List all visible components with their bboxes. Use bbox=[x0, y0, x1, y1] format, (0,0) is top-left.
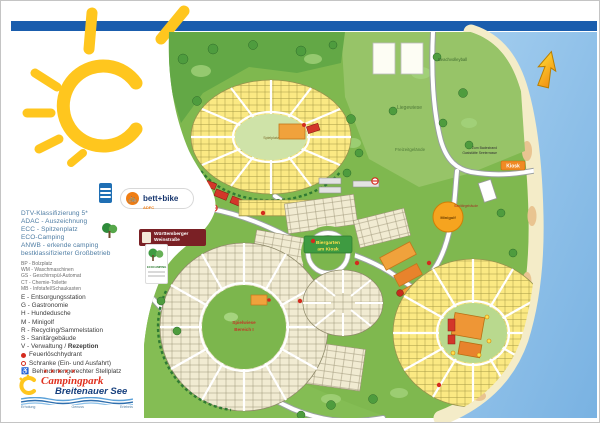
brand-waves-icon bbox=[21, 397, 133, 405]
bett-bike-logo: 🚲 bett+bike ADFC bbox=[120, 188, 194, 209]
label-minigolf: Minigolf bbox=[440, 215, 456, 220]
label-spielplatz: Spielplatz bbox=[263, 136, 279, 140]
weinstrasse-emblem bbox=[142, 232, 151, 243]
label-beachvolleyball: Beachvolleyball bbox=[438, 57, 467, 62]
label-seeterrasse: Gaststätte Seeterrasse bbox=[462, 151, 497, 155]
certification-line: DTV-Klassifizierung 5* bbox=[21, 210, 141, 218]
label-spielwiese-2: Bereich I bbox=[234, 327, 253, 332]
legend-line: M - Minigolf bbox=[21, 319, 146, 327]
bike-icon: 🚲 bbox=[126, 192, 139, 205]
certification-line: ANWB - erkende camping bbox=[21, 242, 141, 250]
label-kiosk: Kiosk bbox=[506, 164, 520, 170]
legend-hydrant-label: Feuerlöschhydrant bbox=[29, 351, 82, 359]
legend-abbreviations: BP - Bolzplatz WM - Waschmaschinen GS - … bbox=[21, 261, 141, 292]
badge-trees-icon bbox=[147, 247, 166, 261]
classification-logo bbox=[99, 183, 112, 203]
legend-hydrant-row: Feuerlöschhydrant bbox=[21, 351, 146, 359]
legend-line: R - Recycling/Sammelstation bbox=[21, 327, 146, 335]
barrier-icon bbox=[21, 361, 26, 366]
pitch-cluster-small bbox=[303, 270, 383, 336]
badge-title: ECOCAMPING bbox=[147, 266, 166, 269]
tagline-word: Erlebnis bbox=[120, 405, 133, 409]
site-plan-page: Beachvolleyball Liegewiese Freizeitgelän… bbox=[0, 0, 600, 423]
sun-illustration bbox=[27, 11, 184, 163]
brand-name-text: Breitenauer See bbox=[55, 386, 127, 397]
label-liegewiese: Liegewiese bbox=[397, 105, 422, 111]
certification-line: ECC - Spitzenplatz bbox=[21, 226, 141, 234]
weinstrasse-line2: Weinstraße bbox=[154, 238, 180, 243]
label-biergarten-2: am Kiosk bbox=[317, 247, 339, 253]
tagline-word: Genuss bbox=[72, 405, 84, 409]
label-biergarten-1: Biergarten bbox=[316, 240, 340, 246]
legend-line-verwaltung: V - Verwaltung / Rezeption bbox=[21, 343, 146, 351]
legend-line: S - Sanitärgebäude bbox=[21, 335, 146, 343]
legend-main: E - Entsorgungsstation G - Gastronomie H… bbox=[21, 294, 146, 376]
top-accent-bar bbox=[11, 21, 597, 31]
certification-line: ECO-Camping bbox=[21, 234, 141, 242]
bett-bike-subtext: ADFC bbox=[143, 206, 178, 210]
legend-line: G - Gastronomie bbox=[21, 302, 146, 310]
brand-logo: ★★★★★ Campingpark Breitenauer See Erholu… bbox=[17, 368, 137, 414]
bett-bike-text: bett+bike bbox=[143, 194, 178, 203]
label-zum-badestrand: Zum Badestrand bbox=[472, 146, 497, 150]
legend-line: H - Hundedusche bbox=[21, 310, 146, 318]
brand-sun-icon bbox=[17, 374, 39, 396]
certification-list: DTV-Klassifizierung 5* ADAC - Auszeichnu… bbox=[21, 210, 141, 258]
weinstrasse-line1: Württemberger bbox=[154, 232, 188, 237]
brand-tagline: Erholung Genuss Erlebnis bbox=[21, 405, 133, 409]
certification-line: bestklassifizierter Großbetrieb bbox=[21, 250, 141, 258]
hydrant-icon bbox=[21, 353, 26, 358]
label-sanitaergebaeude: Sanitärgebäude bbox=[454, 204, 478, 208]
legend-barrier-row: Schranke (Ein- und Ausfahrt) bbox=[21, 360, 146, 368]
legend-line: E - Entsorgungsstation bbox=[21, 294, 146, 302]
legend-verwaltung-prefix: V - Verwaltung / bbox=[21, 343, 68, 350]
legend-line: MB - Infotafel/Schaukasten bbox=[21, 286, 141, 292]
legend-rezeption: Rezeption bbox=[68, 343, 99, 350]
label-spielwiese-1: Spielwiese bbox=[232, 320, 256, 325]
legend-barrier-label: Schranke (Ein- und Ausfahrt) bbox=[29, 360, 111, 368]
eco-tree-logo bbox=[100, 222, 120, 239]
label-freizeitgelaende: Freizeitgelände bbox=[395, 147, 426, 152]
tagline-word: Erholung bbox=[21, 405, 35, 409]
award-badge: ECOCAMPING bbox=[145, 244, 168, 284]
certification-line: ADAC - Auszeichnung bbox=[21, 218, 141, 226]
